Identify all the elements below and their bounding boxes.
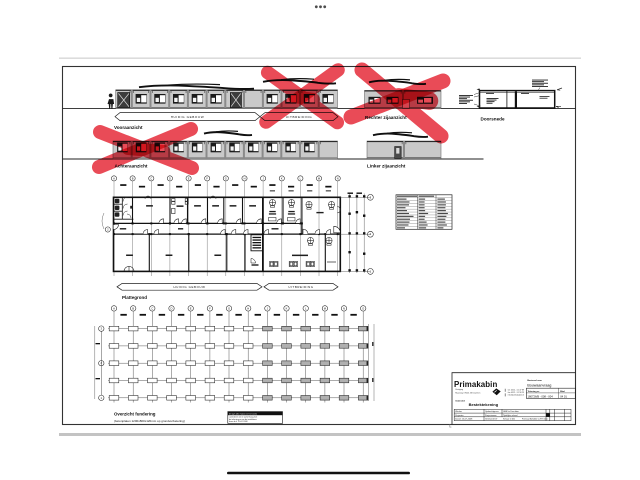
- svg-text:info@primakabin.nl: info@primakabin.nl: [508, 394, 525, 397]
- svg-text:Primakabin: Primakabin: [454, 380, 497, 389]
- svg-text:Blad: Blad: [560, 391, 565, 393]
- svg-text:N: N: [337, 176, 339, 180]
- svg-text:A: A: [113, 176, 115, 180]
- svg-text:Projectnr.: Projectnr.: [455, 414, 464, 417]
- svg-text:B: B: [132, 176, 134, 180]
- svg-text:UITBREIDING: UITBREIDING: [288, 285, 313, 289]
- svg-text:Plattegrond: Plattegrond: [122, 295, 147, 300]
- svg-text:(betonplaten 1200x800x120mm: (betonplaten 1200x800x120mm op grondverb…: [114, 419, 185, 423]
- svg-text:Vestiging: Vestiging: [455, 388, 463, 391]
- svg-text:M: M: [318, 176, 320, 180]
- svg-text:180726/B - 008 - 004: 180726/B - 008 - 004: [528, 394, 554, 398]
- svg-text:Tijdelijke school: Tijdelijke school: [503, 415, 518, 417]
- svg-text:04 01: 04 01: [560, 394, 567, 398]
- svg-text:HUIDIG GEBOUW: HUIDIG GEBOUW: [174, 285, 206, 289]
- svg-text:A: A: [113, 306, 115, 310]
- svg-text:Opdrachtgever: Opdrachtgever: [485, 410, 499, 413]
- svg-text:Bestemd voor: Bestemd voor: [527, 379, 542, 382]
- svg-text:E: E: [188, 176, 190, 180]
- svg-text:E: E: [190, 306, 192, 310]
- svg-text:Haarweg 3 9201 ZX Drachten: Haarweg 3 9201 ZX Drachten: [455, 391, 480, 394]
- svg-text:Bouwaanvraag: Bouwaanvraag: [527, 383, 551, 387]
- svg-text:D: D: [171, 306, 173, 310]
- svg-text:lezen d.d. 15-07-2008: lezen d.d. 15-07-2008: [229, 421, 247, 423]
- svg-text:K: K: [281, 176, 283, 180]
- svg-text:Onderdeel: Onderdeel: [455, 401, 465, 403]
- svg-text:K: K: [286, 306, 288, 310]
- svg-text:Bestektekening: Bestektekening: [469, 402, 499, 407]
- svg-text:Datum 15-07-2008: Datum 15-07-2008: [455, 418, 473, 421]
- svg-text:UITBREIDING: UITBREIDING: [286, 115, 313, 119]
- svg-text:B: B: [132, 306, 134, 310]
- svg-text:G: G: [225, 176, 227, 180]
- svg-text:Projectnaam: Projectnaam: [485, 414, 497, 417]
- svg-text:Schaal 1:100: Schaal 1:100: [503, 419, 516, 421]
- svg-text:Getekend DV: Getekend DV: [485, 418, 498, 421]
- svg-text:GMK te Drachten: GMK te Drachten: [503, 410, 519, 413]
- svg-text:let op! alle maten in het werk: let op! alle maten in het werk: [229, 412, 258, 415]
- svg-text:HUIDIG GEBOUW: HUIDIG GEBOUW: [171, 115, 205, 119]
- svg-text:Overzicht fundering: Overzicht fundering: [114, 411, 156, 416]
- svg-text:Tekening nr.: Tekening nr.: [528, 390, 541, 393]
- svg-text:tel. 0512 - 51 47 89: tel. 0512 - 51 47 89: [508, 388, 524, 391]
- svg-text:N: N: [343, 306, 345, 310]
- svg-text:Vooraanzicht: Vooraanzicht: [114, 125, 143, 130]
- svg-text:C: C: [151, 306, 153, 310]
- svg-text:H: H: [247, 306, 249, 310]
- svg-text:D: D: [169, 176, 171, 180]
- svg-text:O: O: [362, 306, 364, 310]
- svg-text:Formaat A3 (420 x 297 mm): Formaat A3 (420 x 297 mm): [522, 418, 548, 421]
- svg-text:G: G: [228, 306, 230, 310]
- svg-text:Doorsnede: Doorsnede: [481, 116, 505, 121]
- svg-text:C: C: [150, 176, 152, 180]
- svg-text:H: H: [244, 176, 246, 180]
- svg-text:Werknr.: Werknr.: [455, 410, 462, 413]
- svg-text:Linker zijaanzicht: Linker zijaanzicht: [367, 164, 406, 169]
